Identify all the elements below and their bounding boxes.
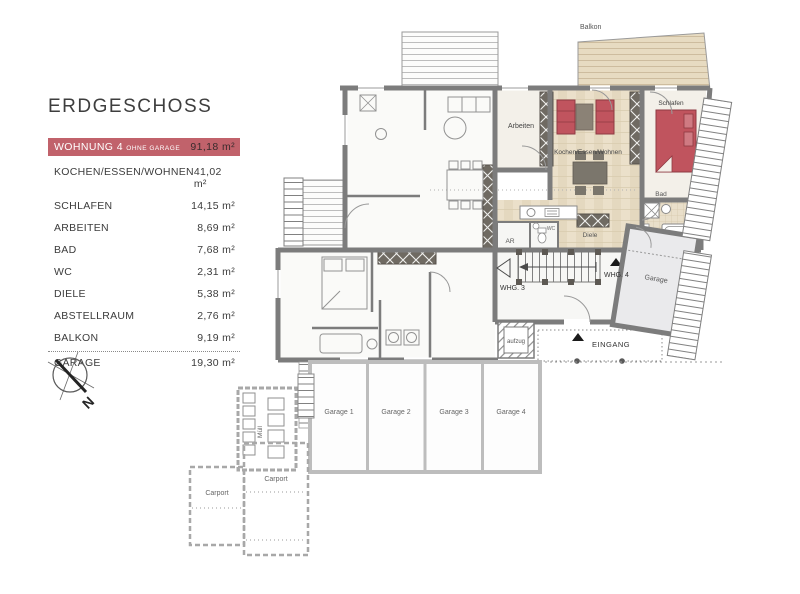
aufzug-label: aufzug: [507, 339, 525, 345]
wohnen-label: Kochen/Essen/Wohnen: [554, 149, 622, 156]
stairs-left: [284, 178, 303, 246]
balcony-label: Balkon: [580, 24, 602, 31]
diele-label: Diele: [583, 232, 598, 239]
garage3-label: Garage 3: [439, 409, 468, 416]
whg4-label: WHG. 4: [604, 272, 629, 279]
garage1-label: Garage 1: [324, 409, 353, 416]
room-ar: [497, 222, 530, 250]
stairs-muell: [298, 374, 314, 418]
garage4-label: Garage 4: [496, 409, 525, 416]
stairwell: [516, 249, 601, 285]
garage2-label: Garage 2: [381, 409, 410, 416]
floor-plan: Garage Balkon Arbeiten Kochen/Essen/Wohn…: [0, 0, 800, 594]
garage-stalls: [299, 362, 724, 472]
bed: [656, 110, 696, 172]
whg3-label: WHG. 3: [500, 285, 525, 292]
wc-label: WC: [547, 226, 556, 232]
ar-label: AR: [505, 238, 514, 245]
bad-label: Bad: [655, 191, 667, 198]
arbeiten-label: Arbeiten: [508, 123, 534, 130]
balcony-top-right: [578, 33, 710, 90]
schlafen-label: Schlafen: [658, 100, 684, 107]
carport-left-label: Carport: [205, 490, 228, 497]
carport-left: [190, 467, 244, 545]
terrace-top-left: [402, 32, 498, 88]
muell-label: Müll: [257, 425, 264, 437]
terrace-left: [303, 180, 345, 245]
entrance-arrow-icon: [572, 333, 584, 341]
carport-right-label: Carport: [264, 476, 287, 483]
eingang-label: EINGANG: [592, 340, 630, 349]
